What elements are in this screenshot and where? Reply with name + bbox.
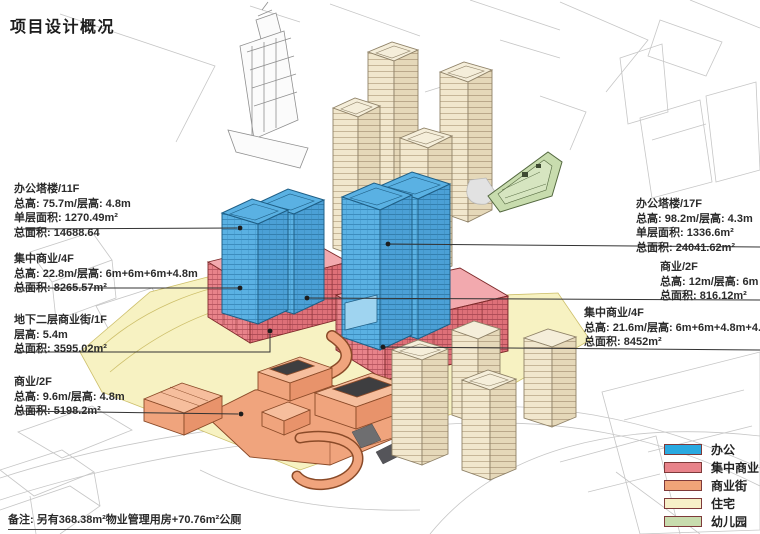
annotation-line: 总面积: 14688.64 (14, 226, 131, 241)
annotation-line: 办公塔楼/17F (636, 197, 753, 212)
landmark-tower-wireframe (228, 2, 308, 168)
annotation-line: 总面积: 3595.02m² (14, 342, 107, 357)
central-commercial-swatch (664, 462, 702, 473)
annotation-commercial-west: 商业/2F 总高: 9.6m/层高: 4.8m 总面积: 5198.2m² (14, 375, 125, 419)
annotation-line: 集中商业/4F (584, 306, 760, 321)
annotation-central-commercial-east: 集中商业/4F 总高: 21.6m/层高: 6m+6m+4.8m+4.8m 总面… (584, 306, 760, 350)
annotation-line: 总面积: 8452m² (584, 335, 760, 350)
legend: 办公 集中商业 商业街 住宅 幼儿园 (664, 443, 759, 533)
legend-item-kindergarten: 幼儿园 (664, 515, 759, 527)
office-tower (222, 199, 288, 324)
annotation-line: 总高: 12m/层高: 6m (660, 275, 758, 290)
annotation-line: 地下二层商业街/1F (14, 313, 107, 328)
residential-tower (462, 370, 516, 480)
legend-label: 办公 (711, 441, 735, 458)
annotation-office-tower-11f: 办公塔楼/11F 总高: 75.7m/层高: 4.8m 单层面积: 1270.4… (14, 182, 131, 241)
legend-label: 幼儿园 (711, 513, 747, 530)
slide-canvas: 项目设计概况 办公塔楼/11F 总高: 75.7m/层高: 4.8m 单层面积:… (0, 0, 760, 534)
annotation-line: 总面积: 5198.2m² (14, 404, 125, 419)
annotation-line: 总高: 22.8m/层高: 6m+6m+6m+4.8m (14, 267, 198, 282)
annotation-line: 商业/2F (660, 260, 758, 275)
footnote: 备注: 另有368.38m²物业管理用房+70.76m²公厕 (8, 511, 241, 530)
annotation-line: 商业/2F (14, 375, 125, 390)
annotation-line: 单层面积: 1336.6m² (636, 226, 753, 241)
annotation-line: 层高: 5.4m (14, 328, 107, 343)
residential-swatch (664, 498, 702, 509)
annotation-line: 总面积: 24041.62m² (636, 241, 753, 256)
annotation-line: 办公塔楼/11F (14, 182, 131, 197)
annotation-commercial-east: 商业/2F 总高: 12m/层高: 6m 总面积: 816.12m² (660, 260, 758, 304)
legend-label: 住宅 (711, 495, 735, 512)
legend-label: 商业街 (711, 477, 747, 494)
residential-tower (524, 329, 576, 427)
legend-item-residential: 住宅 (664, 497, 759, 509)
annotation-office-tower-17f: 办公塔楼/17F 总高: 98.2m/层高: 4.3m 单层面积: 1336.6… (636, 197, 753, 256)
office-towers-17f (342, 172, 450, 350)
annotation-line: 单层面积: 1270.49m² (14, 211, 131, 226)
legend-item-central-commercial: 集中商业 (664, 461, 759, 473)
office-swatch (664, 444, 702, 455)
annotation-line: 总高: 9.6m/层高: 4.8m (14, 390, 125, 405)
annotation-line: 总高: 75.7m/层高: 4.8m (14, 197, 131, 212)
annotation-underground-street: 地下二层商业街/1F 层高: 5.4m 总面积: 3595.02m² (14, 313, 107, 357)
annotation-line: 总面积: 8265.57m² (14, 281, 198, 296)
kindergarten-swatch (664, 516, 702, 527)
legend-item-commercial-street: 商业街 (664, 479, 759, 491)
office-towers-11f (222, 189, 324, 324)
annotation-central-commercial-west: 集中商业/4F 总高: 22.8m/层高: 6m+6m+6m+4.8m 总面积:… (14, 252, 198, 296)
residential-towers-southeast (392, 321, 576, 480)
legend-label: 集中商业 (711, 459, 759, 476)
page-title: 项目设计概况 (10, 13, 115, 37)
residential-tower (392, 340, 448, 465)
annotation-line: 总高: 98.2m/层高: 4.3m (636, 212, 753, 227)
annotation-line: 总面积: 816.12m² (660, 289, 758, 304)
annotation-line: 总高: 21.6m/层高: 6m+6m+4.8m+4.8m (584, 321, 760, 336)
annotation-line: 集中商业/4F (14, 252, 198, 267)
legend-item-office: 办公 (664, 443, 759, 455)
commercial-street-swatch (664, 480, 702, 491)
